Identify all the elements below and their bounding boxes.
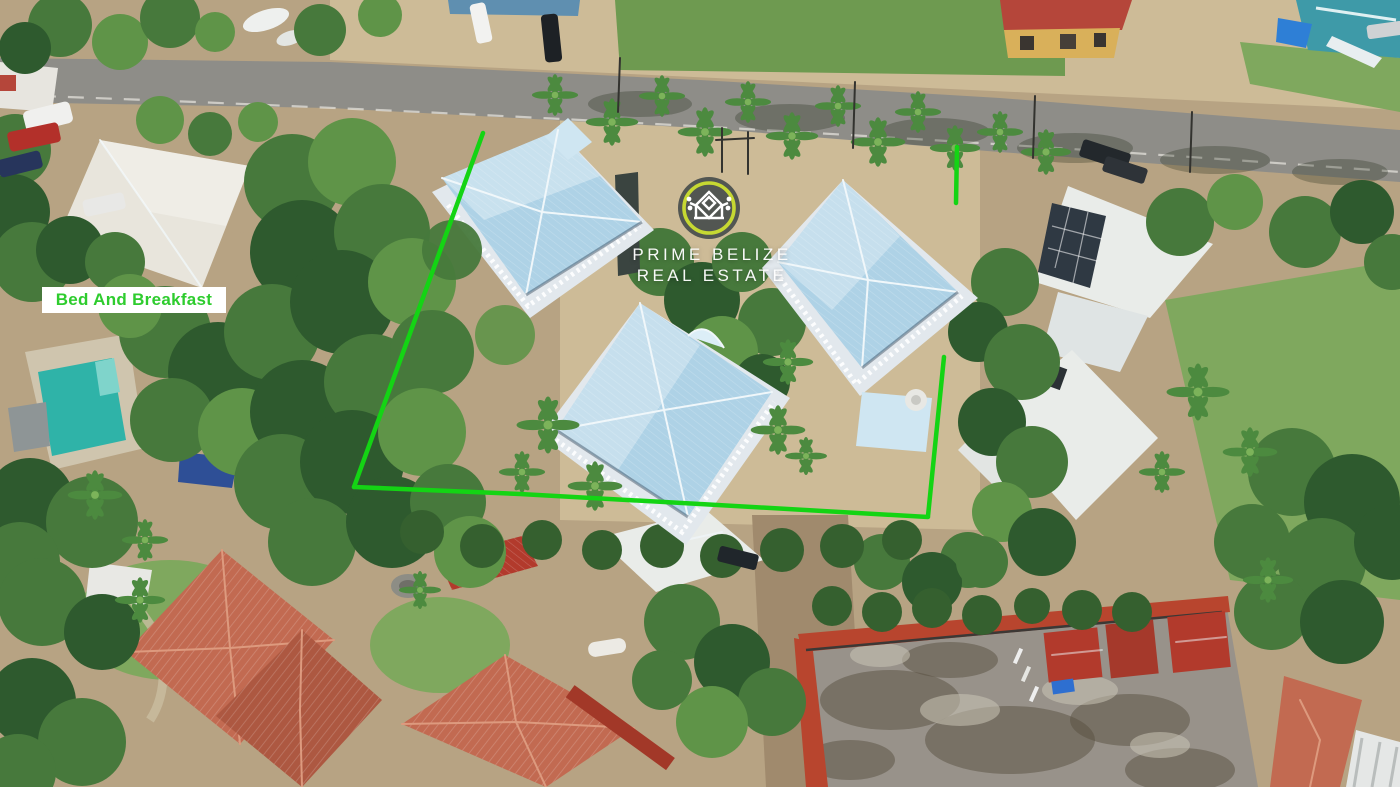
grass-field xyxy=(615,0,1065,76)
mayan-temple-emblem-icon xyxy=(677,176,741,240)
brand-logo-badge xyxy=(677,176,741,240)
aerial-photo-stage: PRIME BELIZE REAL ESTATE Bed And Breakfa… xyxy=(0,0,1400,787)
brand-wordmark: PRIME BELIZE REAL ESTATE xyxy=(562,244,862,286)
property-label: Bed And Breakfast xyxy=(42,287,226,313)
pool-slide xyxy=(8,402,50,452)
property-label-text: Bed And Breakfast xyxy=(56,290,213,310)
brand-line-1: PRIME BELIZE xyxy=(562,244,862,265)
brand-line-2: REAL ESTATE xyxy=(562,265,862,286)
aerial-photo xyxy=(0,0,1400,787)
red-roof-house xyxy=(1000,0,1132,30)
